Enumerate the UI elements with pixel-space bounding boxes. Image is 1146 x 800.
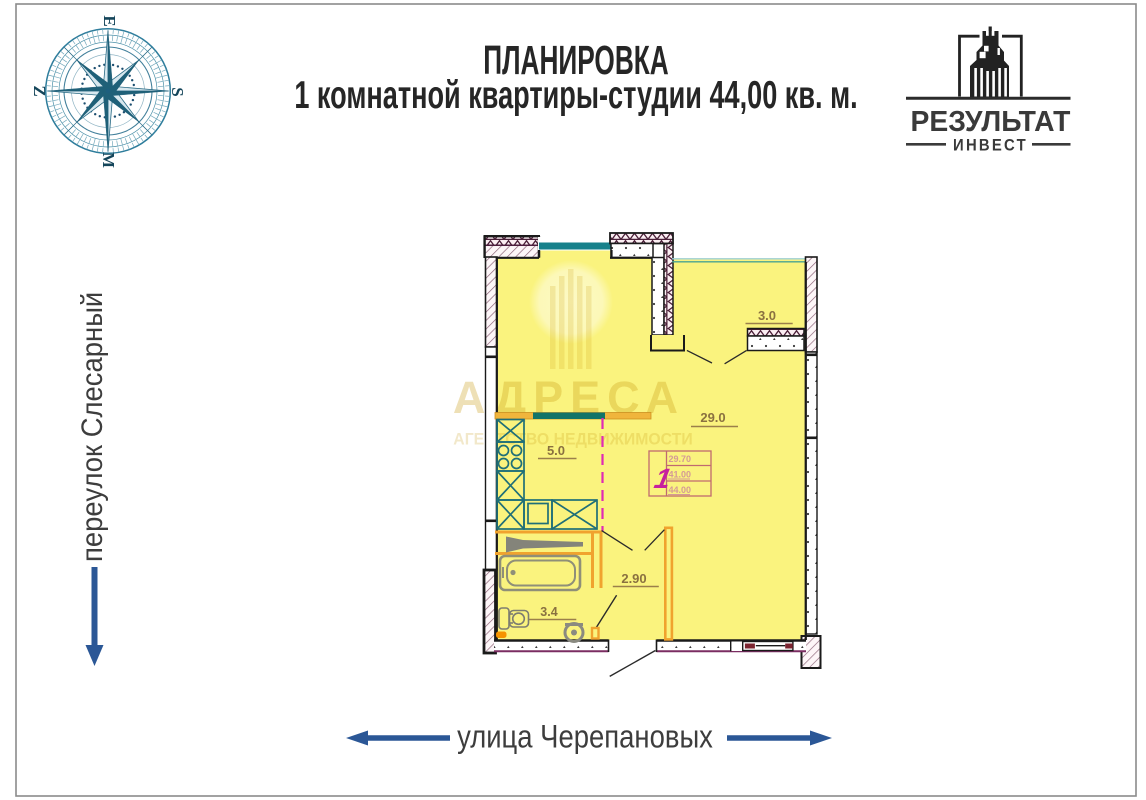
svg-text:3.4: 3.4 (540, 605, 557, 619)
svg-text:M: M (99, 152, 118, 168)
svg-text:переулок Слесарный: переулок Слесарный (76, 292, 109, 562)
svg-text:E: E (100, 15, 119, 26)
svg-text:РЕЗУЛЬТАТ: РЕЗУЛЬТАТ (911, 106, 1071, 138)
svg-text:44.00: 44.00 (669, 485, 692, 495)
svg-text:2.90: 2.90 (621, 571, 646, 586)
svg-text:ИНВЕСТ: ИНВЕСТ (953, 137, 1028, 155)
svg-text:1 комнатной квартиры-студии 44: 1 комнатной квартиры-студии 44,00 кв. м. (294, 74, 857, 117)
svg-text:29.0: 29.0 (700, 410, 725, 425)
svg-text:улица Черепановых: улица Черепановых (457, 719, 713, 755)
svg-text:S: S (168, 87, 187, 96)
svg-text:3.0: 3.0 (758, 308, 776, 323)
svg-text:5.0: 5.0 (547, 443, 565, 458)
svg-text:Z: Z (30, 85, 49, 96)
